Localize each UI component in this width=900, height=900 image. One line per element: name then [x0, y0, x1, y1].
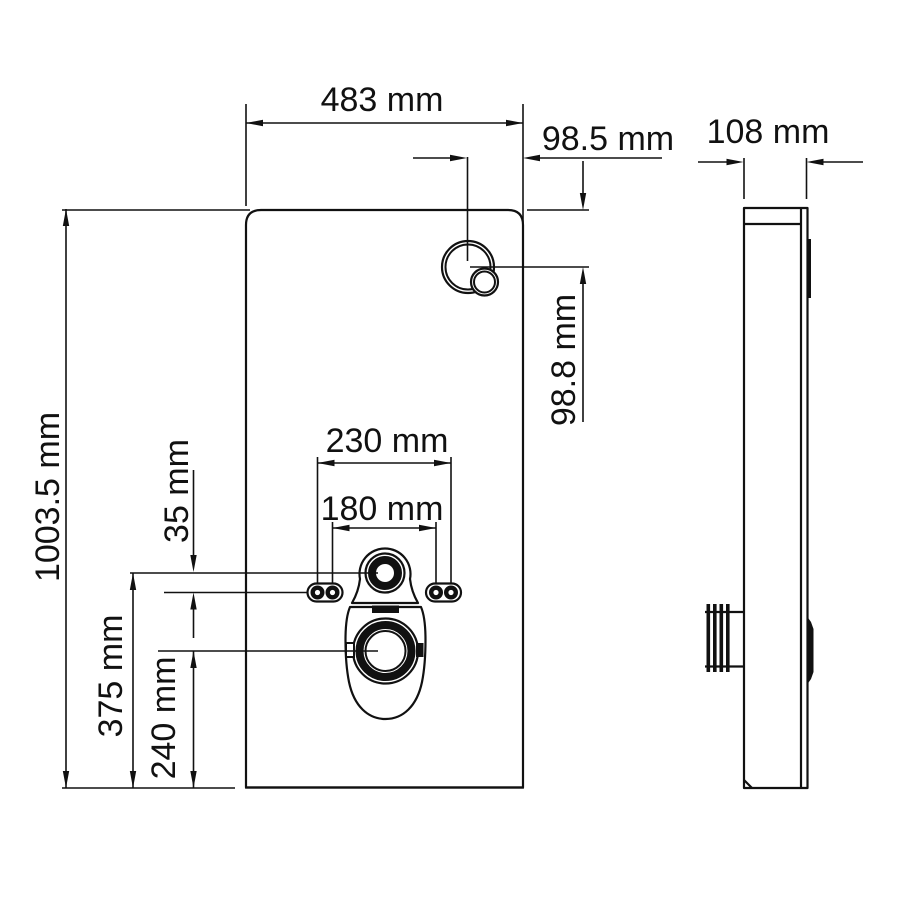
dim-button-offset-x: 98.5 mm — [413, 120, 674, 161]
fitting-clip — [372, 606, 399, 614]
left-hole-a — [313, 588, 323, 598]
front-view — [130, 157, 589, 788]
pipe-rib — [720, 604, 724, 672]
right-hole-b — [446, 588, 456, 598]
dim-height-label: 1003.5 mm — [29, 412, 67, 582]
side-view — [705, 208, 814, 788]
side-bracket — [808, 617, 814, 684]
drawing-canvas: 483 mm 98.5 mm 98.8 mm 1003.5 mm 375 mm — [0, 0, 900, 900]
dim-supply-offset-label: 35 mm — [158, 439, 196, 543]
dim-depth: 108 mm — [698, 113, 863, 199]
dim-holes-inner-label: 180 mm — [321, 490, 444, 528]
pipe-rib — [707, 604, 711, 672]
fitting-left-lug — [346, 643, 354, 657]
fitting-right-lug — [416, 643, 424, 657]
dim-supply-height: 375 mm — [92, 573, 136, 788]
right-hole-a — [431, 588, 441, 598]
dim-width: 483 mm — [246, 81, 523, 224]
pipe-rib — [726, 604, 730, 672]
dim-button-offset-x-label: 98.5 mm — [542, 120, 674, 158]
flush-button-small-outer — [471, 269, 498, 296]
dim-button-offset-y: 98.8 mm — [527, 161, 589, 426]
dim-height: 1003.5 mm — [29, 209, 250, 788]
dim-button-offset-y-label: 98.8 mm — [545, 294, 583, 426]
left-hole-b — [328, 588, 338, 598]
dim-width-label: 483 mm — [321, 81, 444, 119]
pipe-rib — [713, 604, 717, 672]
dim-drain-height-label: 240 mm — [145, 657, 183, 780]
dim-supply-offset: 35 mm — [158, 439, 197, 638]
dim-depth-label: 108 mm — [707, 113, 830, 151]
technical-drawing: 483 mm 98.5 mm 98.8 mm 1003.5 mm 375 mm — [0, 0, 900, 900]
side-body — [744, 208, 808, 788]
side-corrugated-pipe — [705, 604, 744, 672]
side-button-profile — [808, 239, 812, 298]
dim-holes-outer-label: 230 mm — [326, 422, 449, 460]
dim-drain-height: 240 mm — [145, 651, 197, 788]
dim-supply-height-label: 375 mm — [92, 615, 130, 738]
